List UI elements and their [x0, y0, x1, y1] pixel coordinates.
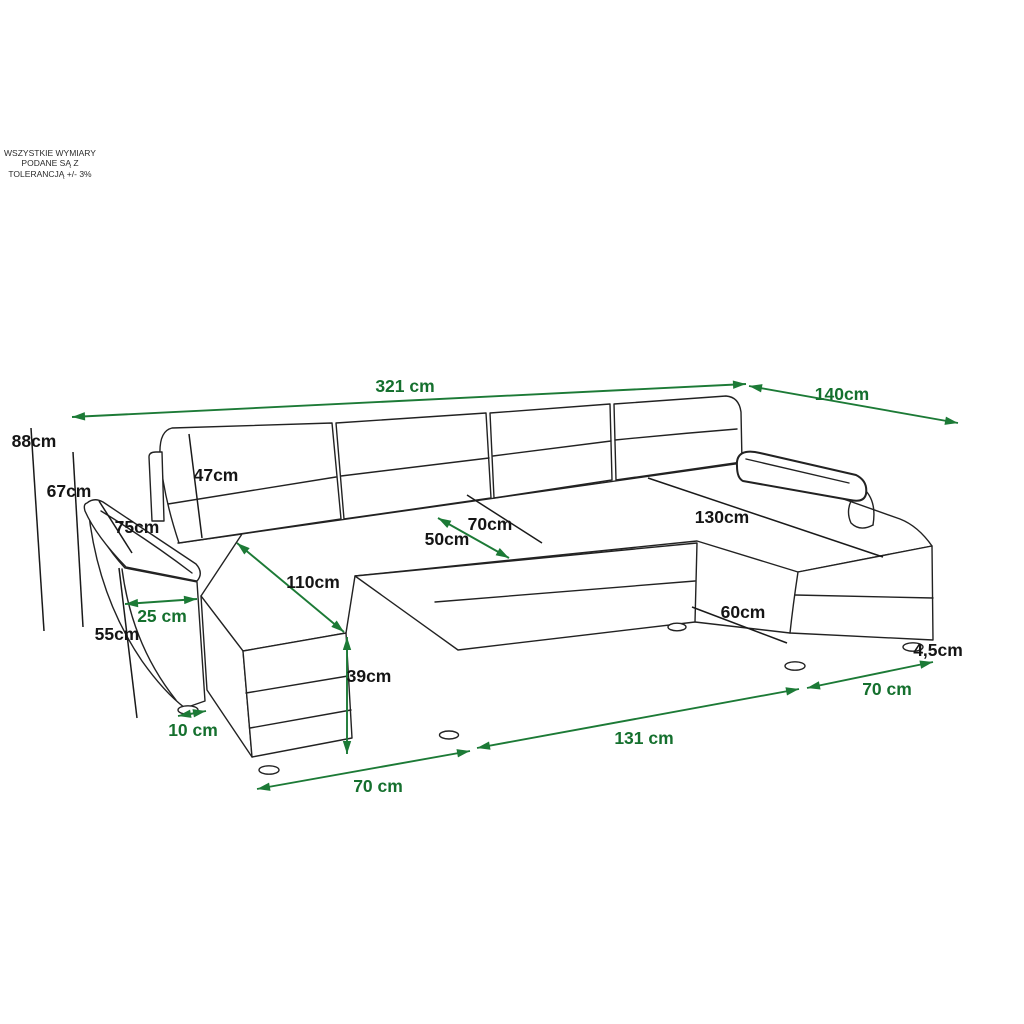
dimension-67cm: 67cm: [47, 452, 92, 627]
dimension-70cm-bl: 70 cm: [257, 749, 470, 796]
arrowhead: [343, 741, 351, 754]
arrowhead: [749, 384, 763, 392]
arrowhead: [456, 749, 470, 757]
dimension-label-47cm: 47cm: [194, 465, 239, 485]
sofa-dimension-diagram: 321 cm140cm50cm110cm39cm25 cm10 cm70 cm1…: [0, 0, 1024, 1024]
dimension-4-5cm: 4,5cm: [913, 640, 963, 660]
dimension-reference-line: [31, 428, 44, 631]
arrowhead: [72, 412, 85, 420]
dimension-140cm: 140cm: [749, 384, 958, 425]
dimension-label-25cm: 25 cm: [137, 606, 187, 626]
dimension-label-60cm: 60cm: [721, 602, 766, 622]
dimension-label-55cm: 55cm: [95, 624, 140, 644]
sofa-foot: [440, 731, 459, 739]
dimension-label-131cm: 131 cm: [614, 728, 673, 748]
dimension-label-75cm: 75cm: [115, 517, 160, 537]
dimension-label-130cm: 130cm: [695, 507, 750, 527]
dimension-10cm: 10 cm: [168, 709, 218, 740]
sofa-foot: [668, 623, 686, 631]
dimension-label-140cm: 140cm: [815, 384, 870, 404]
sofa-drawing: [84, 396, 933, 774]
dimension-label-50cm: 50cm: [425, 529, 470, 549]
dimension-70cm-br: 70 cm: [807, 661, 933, 699]
dimension-label-10cm: 10 cm: [168, 720, 218, 740]
dimension-label-70cm-bl: 70 cm: [353, 776, 403, 796]
dimension-label-321cm: 321 cm: [375, 376, 434, 396]
arrowhead: [944, 417, 958, 425]
dimension-60cm: 60cm: [692, 602, 787, 643]
diagram-canvas: WSZYSTKIE WYMIARY PODANE SĄ Z TOLERANCJĄ…: [0, 0, 1024, 1024]
left-armrest-bracket: [149, 452, 164, 521]
dimension-label-70cm-br: 70 cm: [862, 679, 912, 699]
arrowhead: [257, 783, 271, 791]
dimension-reference-line: [73, 452, 83, 627]
sofa-foot: [785, 662, 805, 670]
dimension-label-70cm-mid: 70cm: [468, 514, 513, 534]
dimension-131cm: 131 cm: [477, 687, 799, 750]
arrowhead: [192, 709, 206, 717]
dimension-88cm: 88cm: [12, 428, 57, 631]
dimension-label-67cm: 67cm: [47, 481, 92, 501]
dimension-label-110cm: 110cm: [286, 572, 340, 592]
arrowhead: [733, 380, 746, 388]
dimension-label-88cm: 88cm: [12, 431, 57, 451]
sofa-foot: [259, 766, 279, 774]
dimension-label-4-5cm: 4,5cm: [913, 640, 963, 660]
dimension-label-39cm: 39cm: [347, 666, 392, 686]
